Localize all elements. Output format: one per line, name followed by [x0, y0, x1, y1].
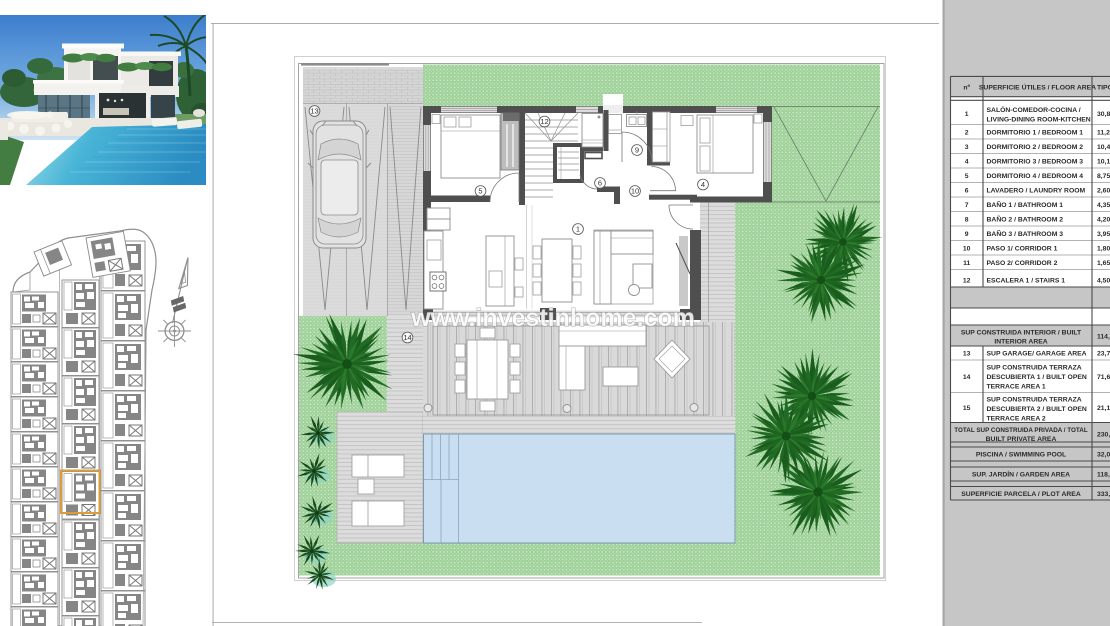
svg-text:9: 9	[635, 146, 639, 155]
svg-text:BAÑO 2 / BATHROOM 2: BAÑO 2 / BATHROOM 2	[987, 214, 1064, 223]
svg-text:DESCUBIERTA 1 / BUILT OPEN: DESCUBIERTA 1 / BUILT OPEN	[987, 374, 1087, 381]
svg-text:SUPERFICIE ÚTILES / FLOOR AREA: SUPERFICIE ÚTILES / FLOOR AREA	[979, 83, 1096, 92]
svg-text:SUP CONSTRUIDA TERRAZA: SUP CONSTRUIDA TERRAZA	[987, 365, 1082, 372]
svg-text:1,80: 1,80	[1097, 245, 1110, 252]
svg-text:15: 15	[963, 405, 971, 412]
svg-text:30,85: 30,85	[1097, 111, 1110, 118]
svg-text:1: 1	[965, 111, 969, 118]
svg-text:6: 6	[965, 187, 969, 194]
svg-text:10,45: 10,45	[1097, 144, 1110, 151]
svg-text:LIVING-DINING ROOM-KITCHEN: LIVING-DINING ROOM-KITCHEN	[987, 117, 1091, 124]
svg-text:INTERIOR AREA: INTERIOR AREA	[994, 339, 1047, 346]
svg-text:4,20: 4,20	[1097, 216, 1110, 223]
svg-text:8: 8	[965, 216, 969, 223]
svg-text:SUP CONSTRUIDA TERRAZA: SUP CONSTRUIDA TERRAZA	[987, 397, 1082, 404]
svg-text:10,10: 10,10	[1097, 158, 1110, 165]
svg-text:3,95: 3,95	[1097, 231, 1110, 238]
svg-text:333,25: 333,25	[1097, 491, 1110, 498]
svg-text:1: 1	[576, 225, 580, 234]
svg-text:1,65: 1,65	[1097, 260, 1110, 267]
svg-text:13: 13	[310, 107, 318, 116]
svg-text:DORMITORIO 4 / BEDROOM 4: DORMITORIO 4 / BEDROOM 4	[987, 173, 1084, 180]
svg-text:4,50: 4,50	[1097, 277, 1110, 284]
svg-text:PISCINA / SWIMMING POOL: PISCINA / SWIMMING POOL	[976, 452, 1066, 459]
svg-text:SUP CONSTRUIDA INTERIOR / BUIL: SUP CONSTRUIDA INTERIOR / BUILT	[961, 330, 1082, 337]
svg-text:ESCALERA 1 / STAIRS 1: ESCALERA 1 / STAIRS 1	[987, 277, 1066, 284]
svg-text:7: 7	[965, 202, 969, 209]
svg-text:10: 10	[963, 245, 971, 252]
svg-text:4: 4	[965, 158, 969, 165]
svg-text:DORMITORIO 1 / BEDROOM 1: DORMITORIO 1 / BEDROOM 1	[987, 129, 1084, 136]
svg-text:21,15: 21,15	[1097, 405, 1110, 412]
svg-text:TIPOLOGÍA: TIPOLOGÍA	[1097, 83, 1110, 92]
svg-text:www.investinhome.com: www.investinhome.com	[410, 304, 695, 332]
svg-text:TOTAL SUP CONSTRUIDA PRIVADA /: TOTAL SUP CONSTRUIDA PRIVADA / TOTAL	[954, 427, 1088, 434]
svg-text:23,70: 23,70	[1097, 351, 1110, 358]
svg-text:4: 4	[701, 180, 705, 189]
svg-text:SUP. JARDÍN / GARDEN AREA: SUP. JARDÍN / GARDEN AREA	[972, 470, 1070, 479]
svg-text:SALÓN-COMEDOR-COCINA /: SALÓN-COMEDOR-COCINA /	[987, 105, 1081, 114]
svg-text:SUP GARAGE/ GARAGE AREA: SUP GARAGE/ GARAGE AREA	[987, 351, 1087, 358]
svg-text:12: 12	[540, 117, 548, 126]
svg-text:230,80: 230,80	[1097, 432, 1110, 439]
svg-text:DESCUBIERTA 2 / BUILT OPEN: DESCUBIERTA 2 / BUILT OPEN	[987, 406, 1087, 413]
svg-text:5: 5	[478, 187, 482, 196]
svg-text:2,60: 2,60	[1097, 187, 1110, 194]
svg-text:13: 13	[963, 351, 971, 358]
svg-text:11,20: 11,20	[1097, 129, 1110, 136]
svg-text:14: 14	[403, 333, 411, 342]
svg-text:DORMITORIO 2 / BEDROOM 2: DORMITORIO 2 / BEDROOM 2	[987, 144, 1084, 151]
svg-text:BAÑO 1 / BATHROOM 1: BAÑO 1 / BATHROOM 1	[987, 200, 1064, 209]
svg-text:PASO 2/ CORRIDOR 2: PASO 2/ CORRIDOR 2	[987, 260, 1058, 267]
svg-text:71,60: 71,60	[1097, 374, 1110, 381]
svg-text:BAÑO 3 / BATHROOM 3: BAÑO 3 / BATHROOM 3	[987, 229, 1064, 238]
svg-text:12: 12	[963, 277, 971, 284]
svg-text:8,75: 8,75	[1097, 173, 1110, 180]
svg-text:9: 9	[965, 231, 969, 238]
svg-text:6: 6	[598, 179, 602, 188]
svg-text:TERRACE AREA 2: TERRACE AREA 2	[987, 416, 1046, 423]
svg-text:5: 5	[965, 173, 969, 180]
svg-text:3: 3	[965, 144, 969, 151]
svg-text:10: 10	[631, 187, 639, 196]
svg-text:nº: nº	[963, 85, 970, 92]
svg-text:114,35: 114,35	[1097, 334, 1110, 341]
svg-text:32,00: 32,00	[1097, 452, 1110, 459]
svg-text:PASO 1/ CORRIDOR 1: PASO 1/ CORRIDOR 1	[987, 245, 1058, 252]
svg-text:11: 11	[963, 260, 970, 267]
svg-text:118,60: 118,60	[1097, 472, 1110, 479]
svg-text:2: 2	[965, 129, 969, 136]
svg-text:DORMITORIO 3 / BEDROOM 3: DORMITORIO 3 / BEDROOM 3	[987, 158, 1084, 165]
svg-text:TERRACE AREA 1: TERRACE AREA 1	[987, 384, 1046, 391]
svg-text:14: 14	[963, 374, 971, 381]
svg-text:4,35: 4,35	[1097, 202, 1110, 209]
svg-text:SUPERFICIE PARCELA / PLOT AREA: SUPERFICIE PARCELA / PLOT AREA	[961, 491, 1081, 498]
svg-text:LAVADERO / LAUNDRY ROOM: LAVADERO / LAUNDRY ROOM	[987, 187, 1086, 194]
